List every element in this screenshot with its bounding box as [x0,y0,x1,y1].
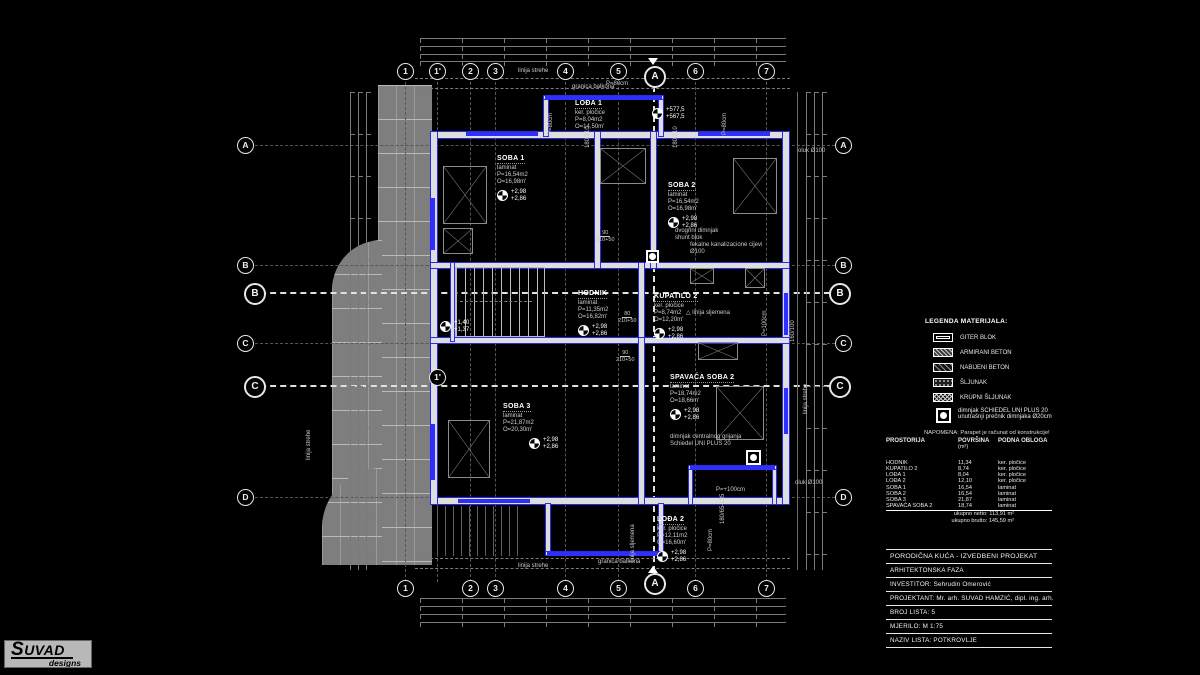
callout-line: dvogrlni dimnjak [675,228,718,235]
furniture-shower [745,268,765,288]
window [784,388,788,434]
callout-line: Ø100 [690,249,762,256]
room-label-loda-2: LOĐA 2 ker. pločice P=12,11m2 O=16,60m' … [657,516,687,563]
grid-bubble-b-right: B [835,257,852,274]
dimension-line [420,622,786,627]
stair-walk-line [460,301,532,302]
wall-interior-v2 [650,131,657,269]
cell-area: 18,74 [958,503,998,509]
spot-elevation-high: +577,5+567,5 [652,107,685,120]
room-label-soba-1: SOBA 1 laminat P=16,54m2 O=16,98m' +2,98… [497,155,528,202]
elevation-marker: +2,98+2,86 [670,408,734,421]
elevation-marker: +2,98+2,86 [654,327,698,340]
door-tag: 90 210+50 [596,230,615,243]
callout-eaves-right: linija strehe [803,362,810,414]
callout-gutter-top: oluk Ø100 [798,148,825,155]
section-bubble-a-bottom: A [644,573,666,595]
legend-label: NABIJENI BETON [960,365,1009,371]
window [466,132,538,136]
callout-line: fekalne kanalizacione cijevi [690,242,762,249]
level-icon [668,217,679,228]
room-perimeter: O=16,82m' [578,314,608,321]
investor: INVESTITOR: Sehrudin Omerović [886,577,1052,591]
project-title: PORODIČNA KUĆA - IZVEDBENI PROJEKAT [886,549,1052,563]
elev-structural: +2,86 [592,331,607,338]
room-finish: laminat [578,300,608,307]
level-icon [657,551,668,562]
elev-value: +1,40 [454,320,469,327]
level-icon [654,328,665,339]
grid-bubble-1-bottom: 1 [397,580,414,597]
dimension-line [420,598,786,603]
room-finish: ker. pločice [657,526,687,533]
dimension-line [366,92,371,570]
room-perimeter: O=16,98m' [497,179,528,186]
grid-bubble-b-left: B [237,257,254,274]
dimension-line [420,46,786,51]
room-area: P=21,87m2 [503,420,558,427]
room-label-hodnik: HODNIK laminat P=11,35m2 O=16,82m' +2,98… [578,290,608,337]
legend-label: GITER BLOK [960,335,996,341]
callout-parapet-100v: P=100cm [762,298,769,336]
callout-parapet-80: P=80cm [708,518,715,551]
room-name: KUPATILO 2 [654,293,698,302]
section-bubble-c-left: C [244,376,266,398]
elev-structural: +2,86 [684,415,699,422]
furniture-bed-soba2 [733,158,777,214]
callout-parapet-80: P=80cm [548,102,555,135]
room-perimeter: O=20,30m' [503,427,558,434]
window-tag: 180/65-135 [720,478,727,524]
level-icon [670,409,681,420]
door-tag: 80 210+50 [618,311,637,324]
title-block: PORODIČNA KUĆA - IZVEDBENI PROJEKAT ARHI… [886,549,1052,648]
door-height: 210+50 [618,318,637,324]
dimension-line [358,92,363,570]
sheet-number: BROJ LISTA: 5 [886,605,1052,619]
callout-eaves-bottom: linija strehe [518,563,548,570]
grid-bubble-5-bottom: 5 [610,580,627,597]
room-finish: laminat [668,192,699,199]
grid-bubble-6-top: 6 [687,63,704,80]
callout-line: dimnjak centralnog grijanja [670,434,741,441]
elevation-marker: +2,98+2,86 [497,189,528,202]
grid-line-1 [405,82,406,582]
swatch-giter-blok [933,333,953,342]
legend-label: ARMIRANI BETON [960,350,1012,356]
callout-chimney-heating: dimnjak centralnog grijanja Schiedel UNI… [670,434,741,447]
grid-bubble-d-left: D [237,489,254,506]
callout-sewer-pipes: fekalne kanalizacione cijevi Ø100 [690,242,762,255]
dimension-line [420,54,786,59]
section-bubble-b-left: B [244,283,266,305]
callout-gutter-bottom: oluk Ø100 [795,480,822,487]
room-name: SOBA 1 [497,155,525,164]
furniture-wardrobe-soba1 [443,228,473,254]
window [431,424,435,480]
legend-label: ŠLJUNAK [960,380,987,386]
room-area: P=16,54m2 [668,199,699,206]
swatch-sljunak [933,378,953,387]
dimension-line [420,38,786,43]
callout-line: Schiedel UNI PLUS 20 [670,441,741,448]
furniture-bath-tub [698,342,738,360]
room-perimeter: O=16,60m' [657,540,687,547]
room-label-spavaca-soba-2: SPAVAĆA SOBA 2 laminat P=18,74m2 O=18,66… [670,374,734,421]
grid-bubble-6-bottom: 6 [687,580,704,597]
dimension-line [822,92,827,570]
area-table: PROSTORIJA POVRŠINA PODNA OBLOGA (m²) HO… [886,438,1052,525]
grid-line-row-a [255,145,840,146]
callout-ridge-line-v: linija sljemena [630,510,637,562]
grid-bubble-1-top: 1 [397,63,414,80]
legend-label: KRUPNI ŠLJUNAK [960,395,1011,401]
legend-label: unutrašnji prečnik dimnjaka Ø20cm [958,414,1052,420]
legend-item-armirani-beton: ARMIRANI BETON [933,348,1012,357]
elev-value: +1,37 [454,327,469,334]
window-tag: 160/100 [790,300,797,342]
elev-structural: +2,86 [671,557,686,564]
grid-bubble-2-bottom: 2 [462,580,479,597]
grid-bubble-c-right: C [835,335,852,352]
cell-floor: laminat [998,503,1052,509]
callout-line: shunt blok [675,235,718,242]
elev-finished: +2,98 [511,189,526,196]
legend-note: NAPOMENA: Parapet je računat od konstruk… [924,430,1050,436]
room-area: P=16,54m2 [497,172,528,179]
logo-title: SUVAD [11,643,73,659]
section-bubble-a-top: A [644,66,666,88]
chimney-shunt-symbol [646,250,659,263]
swatch-krupni-sljunak [933,393,953,402]
room-label-kupatilo-2: KUPATILO 2 ker. pločice P=8,74m2 O=12,20… [654,293,698,340]
grid-bubble-2-top: 2 [462,63,479,80]
elev-finished: +2,98 [668,327,683,334]
level-icon [652,108,663,119]
grid-line-4 [565,82,566,582]
furniture-bed-soba3 [448,420,490,478]
grid-bubble-7-top: 7 [758,63,775,80]
area-table-header-sub: (m²) [886,444,1052,450]
logo-subtitle: designs [5,659,81,667]
elev-finished: +2,98 [684,408,699,415]
furniture-sink [690,268,714,284]
room-label-soba-2: SOBA 2 laminat P=16,54m2 O=16,98m' +2,98… [668,182,699,229]
room-finish: laminat [503,413,558,420]
level-icon [529,438,540,449]
elevation-marker: +2,98+2,86 [657,550,687,563]
wall-interior-v3 [638,262,645,344]
chimney-legend-icon [936,408,951,423]
door-width: 90 [620,350,630,357]
window-loggia2 [547,552,662,556]
room-name: LOĐA 2 [657,516,684,525]
legend-title: LEGENDA MATERIJALA: [925,318,1008,325]
grid-bubble-d-right: D [835,489,852,506]
grid-bubble-a-right: A [835,137,852,154]
legend-item-chimney: dimnjak SCHIEDEL UNI PLUS 20 unutrašnji … [936,408,1052,423]
section-arrow-top-icon [648,58,658,65]
dimension-line [420,614,786,619]
elev-finished: +2,98 [682,216,697,223]
callout-balcony-bottom: granica balkona [598,559,640,566]
callout-ridge-line: △ linija sljemena [686,310,730,317]
room-perimeter: O=12,20m' [654,317,698,324]
room-name: LOĐA 1 [575,100,602,109]
legend-item-sljunak: ŠLJUNAK [933,378,987,387]
room-perimeter: O=18,66m' [670,398,734,405]
door-tag: 90 210+50 [616,350,635,363]
callout-balcony-top: granica balkona [572,84,614,91]
door-height: 210+50 [596,237,615,243]
stair-elevation: +1,40+1,37 [440,320,469,333]
level-icon [440,321,451,332]
grid-bubble-4-bottom: 4 [557,580,574,597]
furniture-closet-center [600,148,646,184]
grid-bubble-a-left: A [237,137,254,154]
project-phase: ARHITEKTONSKA FAZA [886,563,1052,577]
level-icon [578,325,589,336]
wall-terrace-right [772,465,777,505]
grid-bubble-4-top: 4 [557,63,574,80]
elevation-marker: +2,98+2,86 [529,437,558,450]
elevation-marker: +2,98+2,86 [578,324,608,337]
total-net: ukupno netto: 113,91 m² [886,511,1014,518]
window-tag: 180/210 [585,110,592,148]
door-width: 80 [622,311,632,318]
room-finish: laminat [497,165,528,172]
grid-bubble-3-top: 3 [487,63,504,80]
grid-bubble-5-top: 5 [610,63,627,80]
sheet-name: NAZIV LISTA: POTKROVLJE [886,633,1052,647]
window-tag: 180/210 [673,110,680,148]
room-perimeter: O=16,98m' [668,206,699,213]
door-height: 210+50 [616,357,635,363]
window [698,132,770,136]
cell-room: SPAVAĆA SOBA 2 [886,503,958,509]
elev-finished: +2,98 [543,437,558,444]
room-area: P=12,11m2 [657,533,687,540]
elev-finished: +2,98 [671,550,686,557]
scale: MJERILO: M 1:75 [886,619,1052,633]
door-width: 90 [600,230,610,237]
elev-structural: +2,86 [511,196,526,203]
callout-parapet-80: P=80cm [722,102,729,135]
dimension-line [350,92,355,570]
wall-terrace-left [688,465,693,505]
grid-bubble-3-bottom: 3 [487,580,504,597]
room-area: P=18,74m2 [670,391,734,398]
window-terrace [690,466,775,470]
grid-bubble-7-bottom: 7 [758,580,775,597]
eaves-dash-bottom [415,568,790,569]
room-name: SPAVAĆA SOBA 2 [670,374,734,383]
window [458,499,530,503]
section-line-b [250,292,840,294]
grid-bubble-1p-top: 1' [429,63,446,80]
swatch-armirani-beton [933,348,953,357]
grid-bubble-c-left: C [237,335,254,352]
callout-eaves-top: linija strehe [518,68,548,75]
area-table-rows: HODNIK11,34ker. pločice KUPATILO 28,74ke… [886,460,1052,511]
room-name: HODNIK [578,290,607,299]
dimension-line [814,92,819,570]
callout-line: linija sljemena [692,310,730,316]
legend-item-giter-blok: GITER BLOK [933,333,996,342]
legend-item-krupni-sljunak: KRUPNI ŠLJUNAK [933,393,1011,402]
section-bubble-c-right: C [829,376,851,398]
eaves-line-label-left: linija strehe [306,408,313,460]
room-name: SOBA 2 [668,182,696,191]
table-row: SPAVAĆA SOBA 218,74laminat [886,503,1052,509]
grid-bubble-1p-mid: 1' [429,369,446,386]
elev-finished: +2,98 [592,324,607,331]
room-label-soba-3: SOBA 3 laminat P=21,87m2 O=20,30m' +2,98… [503,403,558,450]
elev-structural: +2,86 [543,444,558,451]
col-header-unit: (m²) [958,444,998,450]
gutter-line [797,92,798,570]
room-finish: laminat [670,384,734,391]
elev-structural: +2,86 [668,334,683,341]
dimension-line [420,606,786,611]
total-gross: ukupno brutto: 145,59 m² [886,518,1014,525]
swatch-nabijeni-beton [933,363,953,372]
wall-loggia2-left [545,503,551,555]
room-finish: ker. pločice [654,303,698,310]
section-bubble-b-right: B [829,283,851,305]
lower-roof-hatch [437,506,522,556]
room-area: P=11,35m2 [578,307,608,314]
section-arrow-bottom-icon [648,566,658,573]
room-name: SOBA 3 [503,403,531,412]
callout-chimney-shunt: dvogrlni dimnjak shunt blok [675,228,718,241]
dimension-line [806,92,811,570]
chimney-heating-symbol [746,450,761,465]
window [431,198,435,250]
legend-item-nabijeni-beton: NABIJENI BETON [933,363,1009,372]
wall-interior-v4 [638,337,645,505]
logo: SUVAD designs [4,640,92,668]
level-icon [497,190,508,201]
furniture-bed-soba1 [443,166,487,224]
drawing-sheet: linija strehe [0,0,1200,675]
window [784,293,788,335]
designer: PROJEKTANT: Mr. arh. SUVAD HAMZIĆ, dipl.… [886,591,1052,605]
